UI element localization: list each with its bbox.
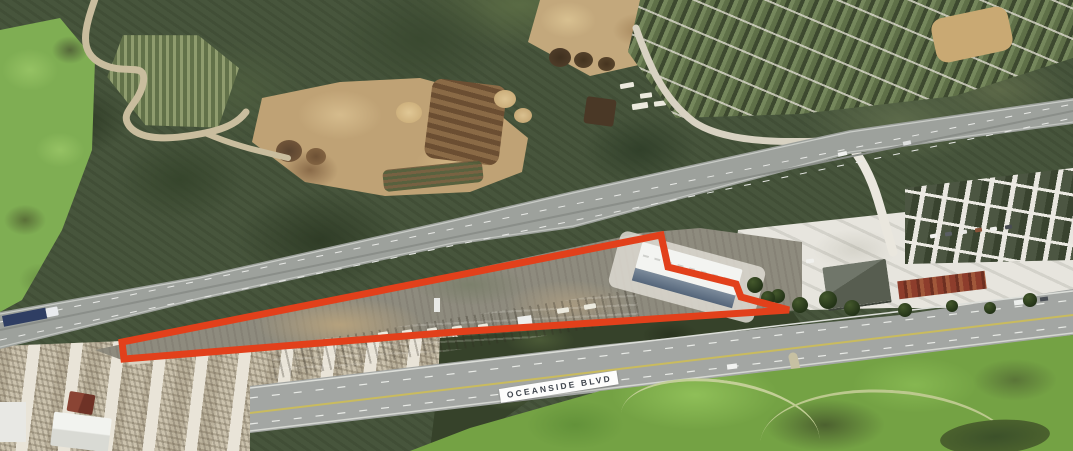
parcel-outline: [122, 235, 789, 359]
aerial-map: OCEANSIDE BLVD: [0, 0, 1073, 451]
